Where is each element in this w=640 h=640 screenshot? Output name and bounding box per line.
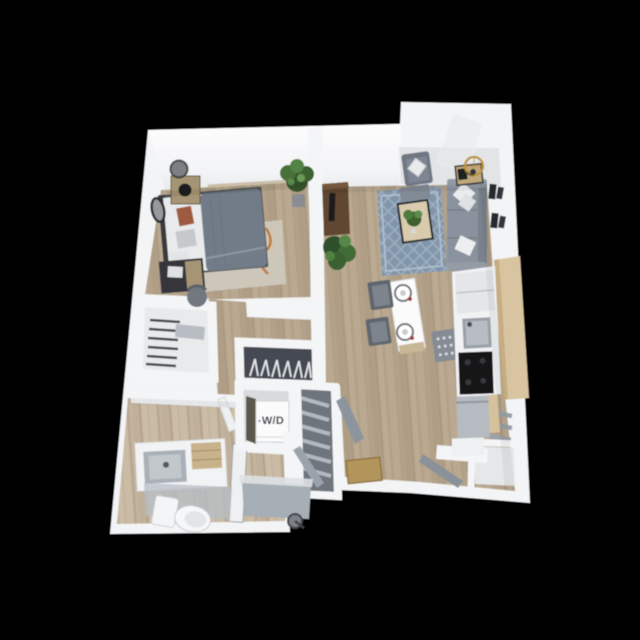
- svg-text:W/D: W/D: [262, 415, 284, 427]
